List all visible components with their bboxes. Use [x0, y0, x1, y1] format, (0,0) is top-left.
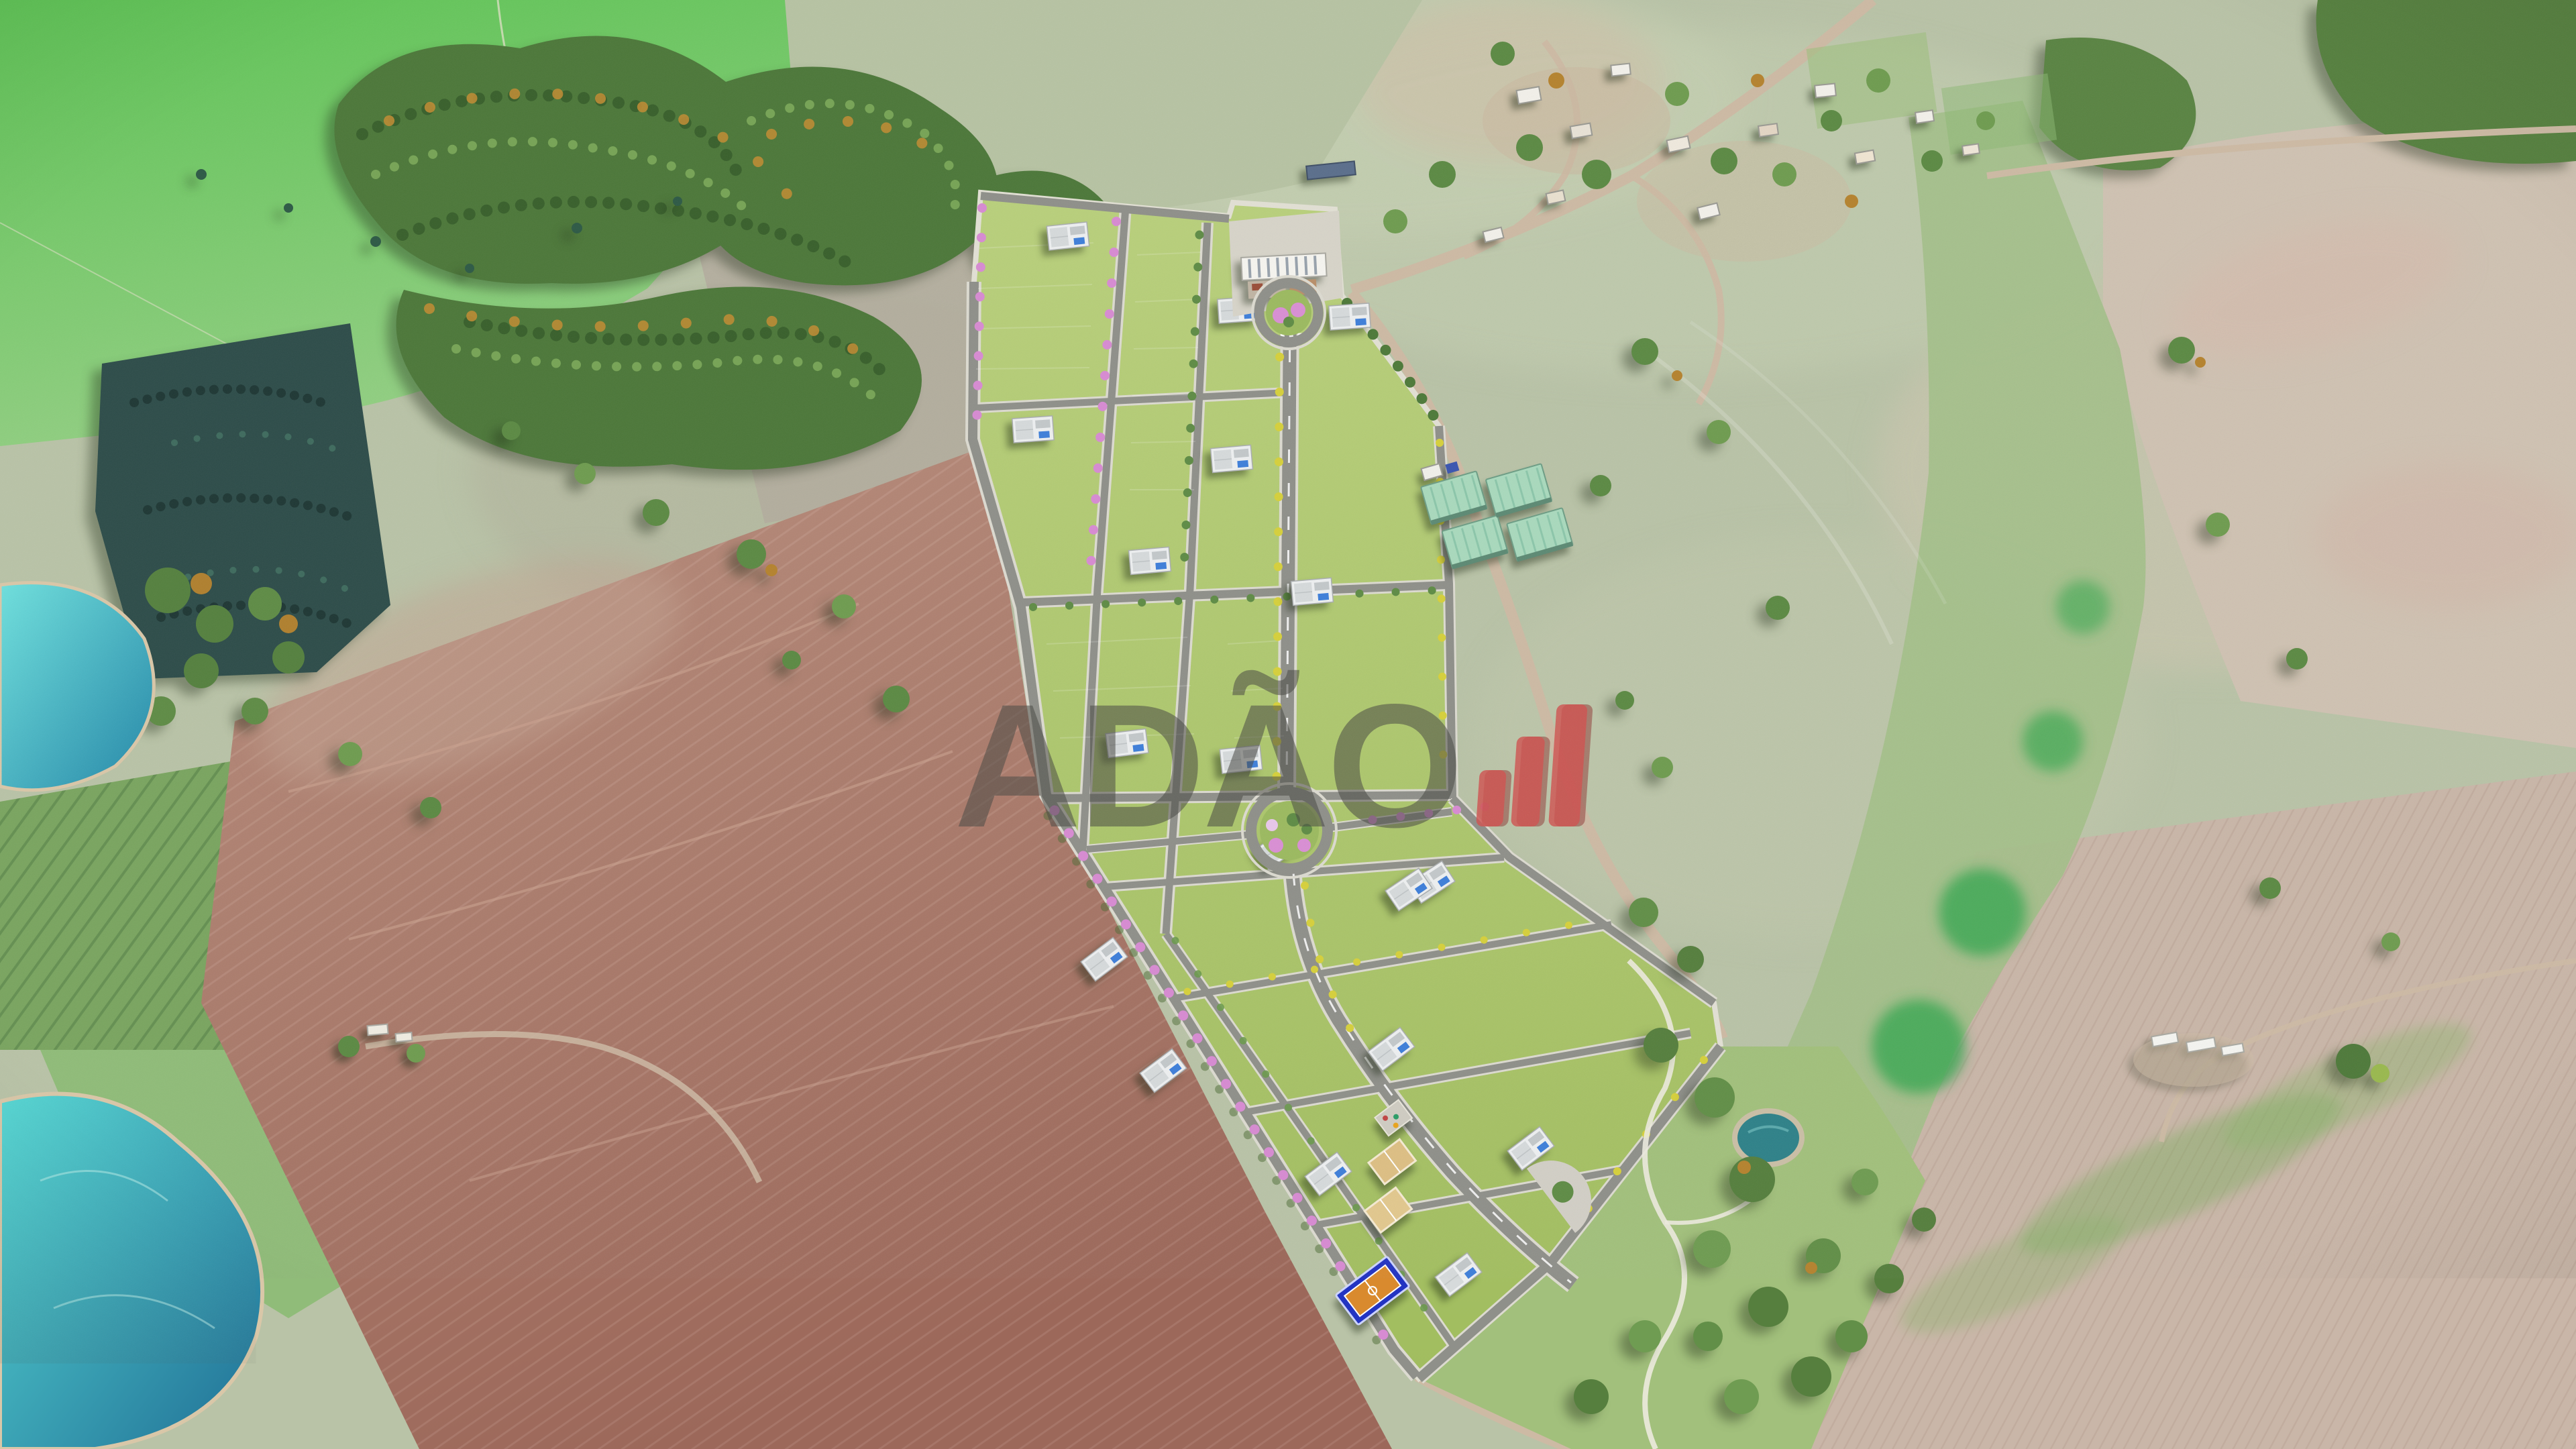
vignette-overlay: [0, 0, 2576, 1449]
aerial-scene: ADÃO: [0, 0, 2576, 1449]
aerial-masterplan-render: ADÃO: [0, 0, 2576, 1449]
